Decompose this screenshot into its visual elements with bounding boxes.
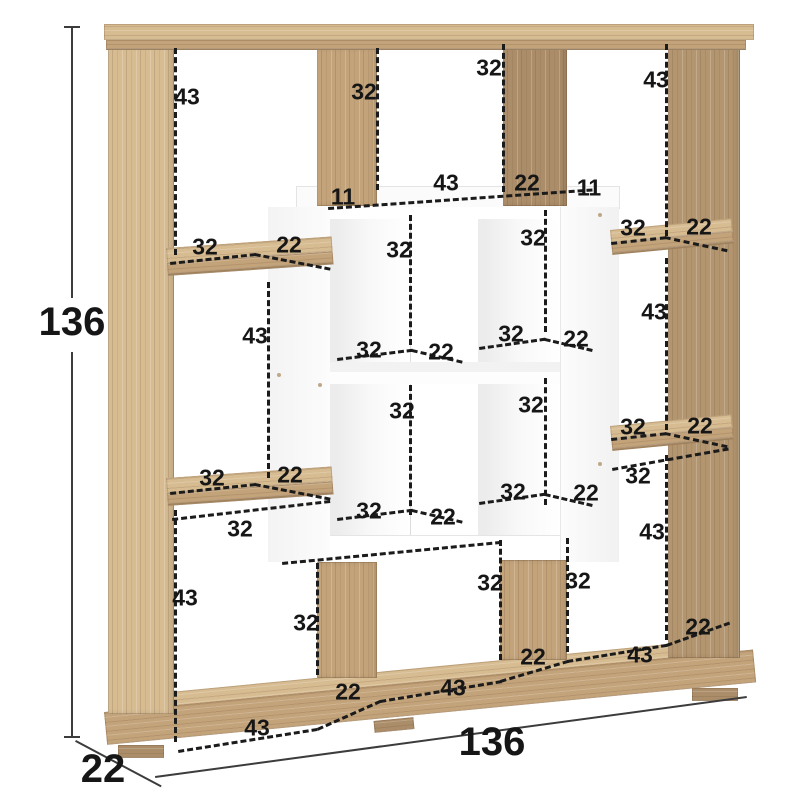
dash-line (665, 455, 668, 640)
dimension-label: 32 (500, 481, 526, 504)
dimension-label: 43 (174, 86, 200, 109)
dimension-label: 32 (520, 227, 546, 250)
screw-hole (598, 213, 602, 217)
dimension-label: 22 (686, 216, 712, 239)
dash-line (267, 282, 270, 478)
dash-line (544, 378, 547, 505)
dimension-label: 22 (573, 482, 599, 505)
dimension-label: 43 (172, 587, 198, 610)
dimension-label: 32 (227, 518, 253, 541)
bottom-divider-left (317, 562, 377, 678)
screw-hole (318, 383, 322, 387)
height-dimension-line (71, 352, 73, 738)
top-board-top-face (104, 24, 754, 40)
dimension-label: 32 (620, 217, 646, 240)
white-middle-shelf (330, 362, 560, 385)
dash-line (566, 538, 569, 652)
screw-hole (277, 373, 281, 377)
dash-line (174, 510, 177, 742)
diagram-canvas: 4332324311432211322243322232322243322232… (0, 0, 800, 800)
dimension-label: 43 (627, 644, 653, 667)
dimension-label: 43 (242, 325, 268, 348)
dimension-label: 32 (351, 81, 377, 104)
dimension-label: 22 (276, 234, 302, 257)
dimension-label: 22 (277, 464, 303, 487)
right-side-panel (668, 40, 740, 658)
dimension-label: 32 (565, 570, 591, 593)
dimension-label: 32 (386, 239, 412, 262)
dimension-label: 32 (477, 572, 503, 595)
dimension-label: 22 (428, 341, 454, 364)
dimension-label: 11 (577, 177, 601, 200)
dimension-label: 22 (335, 681, 361, 704)
foot-middle (374, 717, 415, 733)
dimension-label: 22 (685, 616, 711, 639)
dimension-label: 22 (687, 415, 713, 438)
dimension-label: 32 (192, 236, 218, 259)
dimension-label: 43 (433, 172, 459, 195)
overall-depth-label: 22 (81, 749, 126, 789)
dimension-label: 32 (476, 57, 502, 80)
dimension-label: 32 (356, 500, 382, 523)
dimension-label: 22 (430, 506, 456, 529)
dimension-label: 43 (639, 521, 665, 544)
dash-line (174, 48, 177, 255)
height-dimension-line (71, 27, 73, 298)
dimension-label: 32 (389, 400, 415, 423)
dimension-label: 43 (643, 69, 669, 92)
screw-hole (598, 462, 602, 466)
overall-width-label: 136 (459, 722, 526, 762)
dimension-label: 32 (199, 467, 225, 490)
dimension-label: 32 (498, 323, 524, 346)
dimension-label: 22 (563, 328, 589, 351)
height-tick-top (64, 26, 80, 28)
dimension-label: 43 (440, 677, 466, 700)
top-board-front-edge (106, 40, 746, 50)
dimension-label: 43 (641, 301, 667, 324)
dash-line (409, 215, 412, 345)
left-side-panel (108, 40, 174, 714)
dimension-label: 32 (620, 416, 646, 439)
dimension-label: 32 (518, 394, 544, 417)
dimension-label: 43 (244, 717, 270, 740)
top-divider-left (317, 48, 377, 206)
dash-line (376, 48, 379, 190)
dimension-label: 22 (514, 172, 540, 195)
dimension-label: 32 (356, 339, 382, 362)
dash-line (665, 258, 668, 430)
height-tick-bottom (64, 736, 80, 738)
dimension-label: 11 (331, 186, 355, 209)
dimension-label: 22 (520, 646, 546, 669)
dimension-label: 32 (293, 612, 319, 635)
overall-height-label: 136 (39, 302, 106, 342)
dash-line (502, 44, 505, 192)
dimension-label: 32 (625, 465, 651, 488)
dash-line (499, 540, 502, 660)
white-right-face (560, 207, 619, 562)
